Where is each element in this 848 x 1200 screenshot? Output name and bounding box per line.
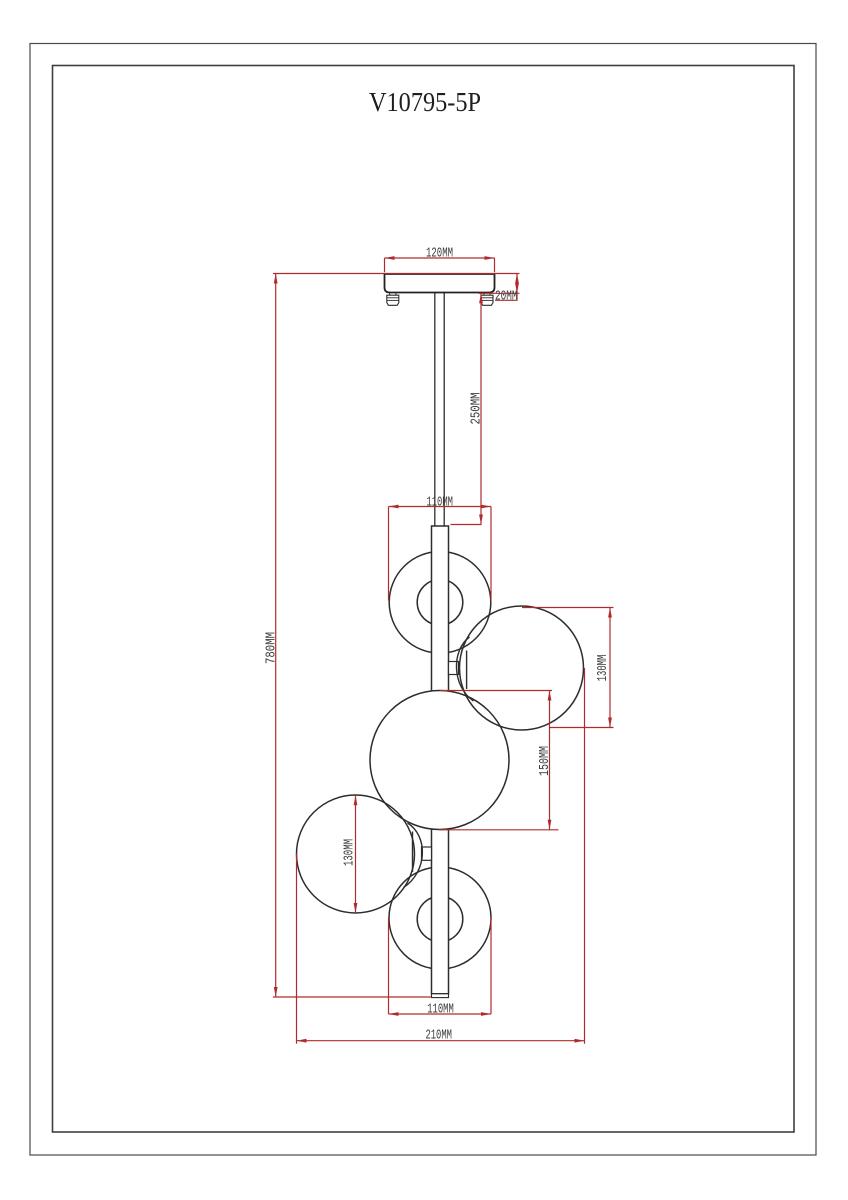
svg-text:130MM: 130MM (595, 655, 611, 682)
svg-text:V10795-5P: V10795-5P (369, 87, 481, 117)
svg-text:120MM: 120MM (426, 245, 453, 261)
svg-text:250MM: 250MM (468, 393, 484, 425)
svg-text:780MM: 780MM (264, 632, 280, 664)
svg-text:130MM: 130MM (341, 839, 357, 866)
svg-text:150MM: 150MM (537, 746, 553, 776)
svg-text:110MM: 110MM (426, 494, 453, 510)
svg-text:110MM: 110MM (427, 1001, 454, 1017)
svg-text:20MM: 20MM (495, 288, 518, 304)
svg-text:210MM: 210MM (425, 1028, 452, 1044)
